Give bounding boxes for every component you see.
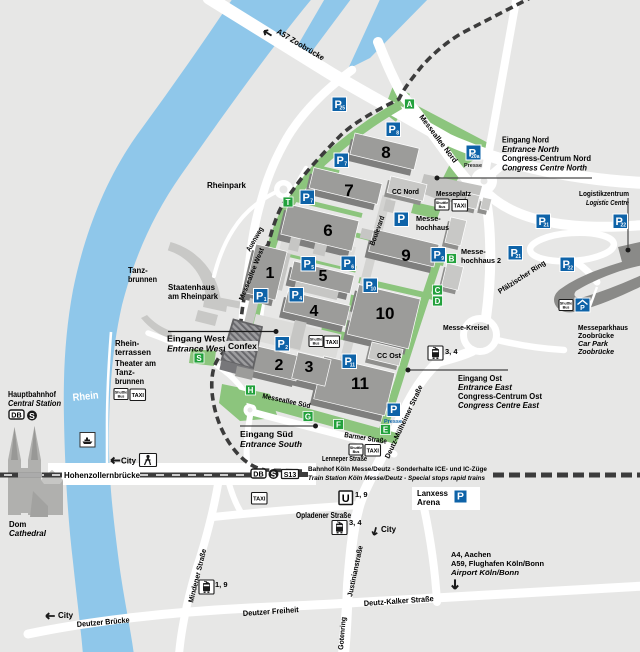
svg-text:4: 4 <box>299 296 302 302</box>
svg-text:11: 11 <box>350 363 356 369</box>
svg-text:9: 9 <box>441 256 444 262</box>
svg-text:9: 9 <box>401 246 410 265</box>
svg-text:Tanz-: Tanz- <box>128 266 148 275</box>
svg-text:City: City <box>58 611 74 620</box>
svg-text:7: 7 <box>310 199 313 205</box>
svg-text:hochhaus 2: hochhaus 2 <box>461 256 501 265</box>
svg-text:1, 9: 1, 9 <box>215 580 228 589</box>
svg-text:P: P <box>434 250 441 262</box>
svg-text:S: S <box>29 411 35 421</box>
svg-text:21: 21 <box>543 223 549 229</box>
svg-text:Bus: Bus <box>563 306 570 310</box>
svg-text:am Rheinpark: am Rheinpark <box>168 292 219 301</box>
svg-text:Rhein-: Rhein- <box>115 339 140 348</box>
svg-text:Confex: Confex <box>228 341 257 351</box>
svg-text:Staatenhaus: Staatenhaus <box>168 283 216 292</box>
svg-text:C: C <box>435 286 441 295</box>
svg-text:Entrance East: Entrance East <box>458 383 512 392</box>
svg-text:Bahnhof Köln Messe/Deutz - Son: Bahnhof Köln Messe/Deutz - Sonderhalte I… <box>308 466 487 473</box>
svg-text:Entrance North: Entrance North <box>502 145 559 154</box>
svg-text:Hohenzollernbrücke: Hohenzollernbrücke <box>64 471 141 480</box>
svg-text:hochhaus: hochhaus <box>416 223 449 232</box>
svg-text:8: 8 <box>381 143 390 162</box>
svg-text:A: A <box>407 100 413 109</box>
svg-text:P: P <box>389 124 396 136</box>
svg-text:Train Station Köln Messe/Deutz: Train Station Köln Messe/Deutz - Special… <box>308 475 485 482</box>
svg-text:5: 5 <box>319 268 328 285</box>
svg-text:Logistikzentrum: Logistikzentrum <box>579 189 629 198</box>
svg-text:CC Ost: CC Ost <box>377 351 402 360</box>
svg-text:1: 1 <box>264 297 267 303</box>
svg-text:2: 2 <box>275 357 284 374</box>
svg-text:Bus: Bus <box>313 342 320 346</box>
svg-text:Eingang Ost: Eingang Ost <box>458 374 502 383</box>
svg-text:Rheinpark: Rheinpark <box>207 181 247 190</box>
svg-text:P: P <box>303 192 310 204</box>
svg-text:Lanxess: Lanxess <box>417 489 449 498</box>
svg-text:H: H <box>248 386 254 395</box>
svg-text:TAXI: TAXI <box>454 204 467 210</box>
svg-text:1, 9: 1, 9 <box>355 490 368 499</box>
svg-text:10: 10 <box>370 287 376 293</box>
svg-text:Central Station: Central Station <box>8 399 61 408</box>
svg-text:Airport Köln/Bonn: Airport Köln/Bonn <box>450 568 520 577</box>
svg-text:T: T <box>286 198 291 207</box>
svg-text:Congress Centre East: Congress Centre East <box>458 401 539 410</box>
svg-text:F: F <box>336 421 341 430</box>
svg-text:8: 8 <box>396 131 399 137</box>
svg-text:10: 10 <box>376 304 395 323</box>
svg-text:DB: DB <box>253 469 263 478</box>
svg-text:Congress-Centrum Ost: Congress-Centrum Ost <box>458 392 542 401</box>
svg-text:20a: 20a <box>471 154 480 160</box>
svg-text:TAXI: TAXI <box>367 449 380 455</box>
svg-text:3, 4: 3, 4 <box>445 347 458 356</box>
svg-text:Zoobrücke: Zoobrücke <box>577 347 614 356</box>
svg-text:terrassen: terrassen <box>115 348 151 357</box>
svg-text:7: 7 <box>344 162 347 168</box>
svg-text:Messe-Kreisel: Messe-Kreisel <box>443 323 489 332</box>
svg-text:Tanz-: Tanz- <box>115 368 135 377</box>
svg-text:S13: S13 <box>284 472 297 479</box>
svg-text:Eingang Nord: Eingang Nord <box>502 136 549 145</box>
svg-text:Eingang West: Eingang West <box>167 335 225 344</box>
svg-text:Bus: Bus <box>439 205 446 209</box>
svg-text:4: 4 <box>310 303 319 320</box>
svg-text:P: P <box>580 305 585 312</box>
svg-text:Entrance West: Entrance West <box>167 345 226 354</box>
svg-text:Bus: Bus <box>118 395 125 399</box>
svg-text:TAXI: TAXI <box>253 497 266 503</box>
svg-text:25: 25 <box>339 106 345 112</box>
svg-text:G: G <box>305 413 311 422</box>
svg-text:11: 11 <box>351 374 369 393</box>
svg-text:S: S <box>196 354 202 363</box>
svg-text:A59, Flughafen Köln/Bonn: A59, Flughafen Köln/Bonn <box>451 559 544 568</box>
svg-text:2: 2 <box>285 345 288 351</box>
svg-text:Congress Centre North: Congress Centre North <box>502 163 587 172</box>
svg-text:Presse: Presse <box>464 163 482 169</box>
svg-text:Cathedral: Cathedral <box>9 529 47 538</box>
svg-text:U: U <box>342 493 350 505</box>
svg-text:P: P <box>390 404 397 416</box>
svg-text:brunnen: brunnen <box>128 275 157 284</box>
svg-text:P: P <box>457 492 464 503</box>
svg-text:E: E <box>383 426 389 435</box>
svg-text:P: P <box>304 259 311 271</box>
svg-text:22: 22 <box>620 223 626 229</box>
svg-text:S: S <box>271 470 277 480</box>
svg-text:City: City <box>121 457 137 466</box>
svg-text:A4, Aachen: A4, Aachen <box>451 550 491 559</box>
svg-text:Arena: Arena <box>417 498 441 507</box>
svg-text:City: City <box>381 525 397 534</box>
svg-text:P: P <box>278 339 285 351</box>
svg-text:1: 1 <box>266 265 275 282</box>
svg-text:P: P <box>337 155 344 167</box>
svg-text:Messeplatz: Messeplatz <box>436 189 471 198</box>
svg-text:Dom: Dom <box>9 520 26 529</box>
svg-text:3, 4: 3, 4 <box>349 518 362 527</box>
svg-text:DB: DB <box>11 410 21 419</box>
svg-text:Logistic Centre: Logistic Centre <box>586 198 629 207</box>
svg-text:Opladener Straße: Opladener Straße <box>296 511 352 520</box>
svg-text:P: P <box>397 213 405 226</box>
svg-text:TAXI: TAXI <box>326 340 339 346</box>
svg-text:D: D <box>435 297 441 306</box>
svg-text:Congress-Centrum Nord: Congress-Centrum Nord <box>502 154 591 163</box>
svg-text:6: 6 <box>323 221 332 240</box>
svg-text:P: P <box>256 291 263 303</box>
svg-text:22: 22 <box>567 266 573 272</box>
svg-text:TAXI: TAXI <box>132 393 145 399</box>
svg-text:6: 6 <box>351 265 354 271</box>
svg-text:CC Nord: CC Nord <box>392 187 419 196</box>
svg-text:3: 3 <box>305 359 314 376</box>
svg-text:P: P <box>344 258 351 270</box>
svg-text:Theater am: Theater am <box>115 359 156 368</box>
svg-text:Hauptbahnhof: Hauptbahnhof <box>8 390 56 399</box>
svg-text:7: 7 <box>344 181 353 200</box>
svg-text:P: P <box>292 290 299 302</box>
svg-text:brunnen: brunnen <box>115 377 144 386</box>
svg-text:Messe-: Messe- <box>461 247 486 256</box>
svg-text:21: 21 <box>515 254 521 260</box>
svg-text:Bus: Bus <box>353 450 360 454</box>
svg-text:Entrance South: Entrance South <box>240 440 302 449</box>
svg-text:Eingang Süd: Eingang Süd <box>240 430 293 439</box>
svg-text:B: B <box>449 255 455 264</box>
svg-text:Messe-: Messe- <box>416 214 441 223</box>
svg-text:5: 5 <box>311 265 314 271</box>
